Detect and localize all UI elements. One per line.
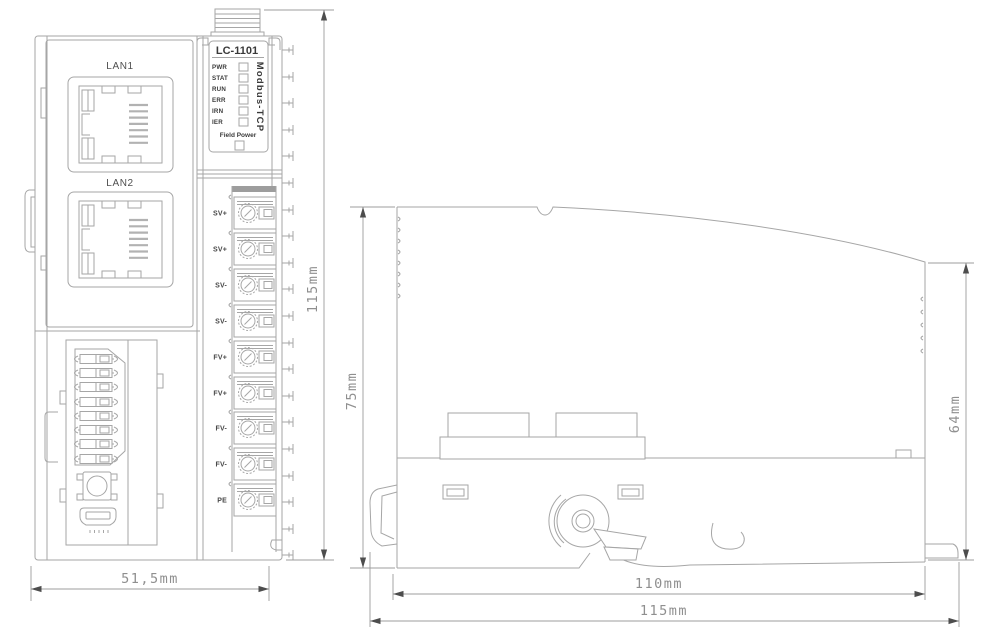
side-body-height-value: 64mm — [947, 395, 963, 434]
protocol-label: Modbus-TCP — [254, 62, 265, 133]
front-dimension-width: 51,5mm — [31, 566, 269, 601]
side-housing — [397, 207, 958, 568]
side-dimension-overall-height: 75mm — [344, 207, 395, 568]
dimension-drawing: LAN1 LAN2 — [0, 0, 997, 634]
micro-usb-icon — [80, 508, 116, 533]
model-label: LC-1101 — [216, 45, 258, 57]
terminal-strip: SV+ SV+ SV- SV- FV+ FV+ FV- FV- PE — [197, 170, 282, 552]
led-label-ier: IER — [212, 119, 223, 126]
terminal-label-pe: PE — [217, 498, 227, 505]
din-rail-mount — [370, 485, 744, 560]
terminal-label-fv-plus-1: FV+ — [213, 355, 227, 362]
lan2-port-icon — [68, 192, 173, 287]
dip-switch-icon — [75, 349, 126, 465]
led-label-irn: IRN — [212, 108, 224, 115]
field-power-label: Field Power — [220, 132, 257, 139]
terminal-label-fv-plus-2: FV+ — [213, 391, 227, 398]
led-label-run: RUN — [212, 86, 226, 93]
lan-section: LAN1 LAN2 — [46, 40, 193, 327]
side-dimension-rail-width: 110mm — [393, 566, 925, 600]
bus-connector-side — [440, 413, 645, 459]
led-label-stat: STAT — [212, 75, 228, 82]
lan2-label: LAN2 — [106, 178, 133, 189]
side-rail-width-value: 110mm — [635, 576, 683, 592]
terminal-label-sv-minus-2: SV- — [215, 319, 227, 326]
led-label-pwr: PWR — [212, 64, 227, 71]
terminal-label-sv-plus-2: SV+ — [213, 247, 227, 254]
side-overall-width-value: 115mm — [640, 603, 688, 619]
lan1-port-icon — [68, 77, 173, 172]
rail-hook-icon — [370, 485, 397, 546]
terminal-label-fv-minus-2: FV- — [216, 462, 228, 469]
rail-latch-icon — [549, 495, 744, 560]
label-panel: LC-1101 PWR STAT RUN ERR IRN IER Modbus-… — [209, 41, 268, 152]
side-view: 75mm 64mm 110mm 115mm — [344, 207, 974, 627]
push-button-icon — [77, 472, 117, 500]
led-indicator-icons — [239, 63, 248, 126]
field-power-led-icon — [235, 141, 244, 150]
terminal-label-fv-minus-1: FV- — [216, 426, 228, 433]
front-height-value: 115mm — [305, 265, 321, 313]
technical-drawing-page: LAN1 LAN2 — [0, 0, 997, 634]
front-width-value: 51,5mm — [121, 571, 179, 587]
terminal-label-sv-minus-1: SV- — [215, 283, 227, 290]
side-dimension-body-height: 64mm — [928, 263, 974, 560]
side-overall-height-value: 75mm — [344, 372, 360, 411]
lan1-label: LAN1 — [106, 61, 133, 72]
front-view: LAN1 LAN2 — [25, 9, 334, 601]
terminal-label-sv-plus-1: SV+ — [213, 211, 227, 218]
rail-clip-edge — [282, 45, 293, 560]
led-label-err: ERR — [212, 97, 226, 104]
config-section — [45, 340, 163, 545]
top-bus-connector — [211, 9, 264, 36]
